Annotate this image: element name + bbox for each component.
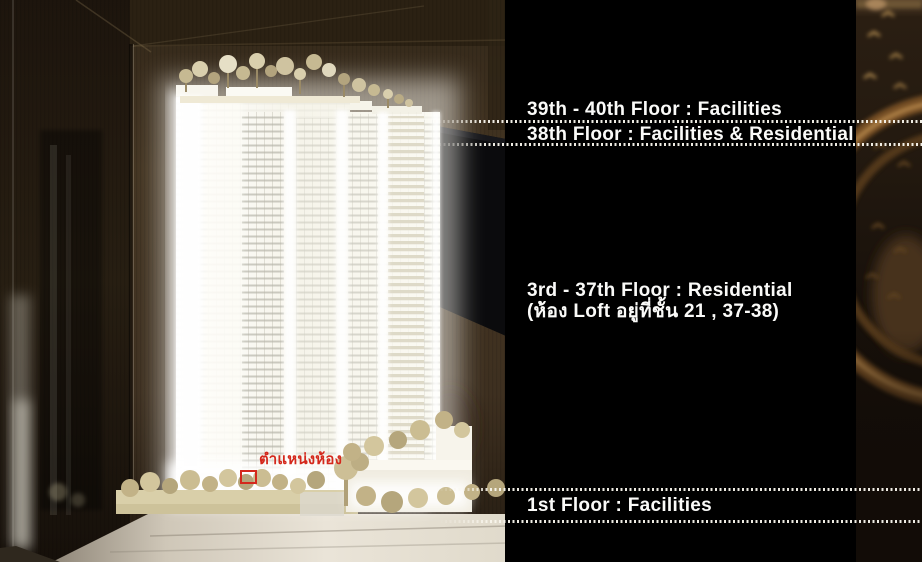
background-photo-strip [856, 0, 922, 562]
floor-label-3-37th-main: 3rd - 37th Floor : Residential [527, 280, 793, 301]
leader-line-1st-top [436, 488, 922, 491]
floor-label-39-40th: 39th - 40th Floor : Facilities [527, 99, 782, 121]
floor-label-38th: 38th Floor : Facilities & Residential [527, 124, 854, 146]
floor-label-3-37th: 3rd - 37th Floor : Residential (ห้อง Lof… [527, 280, 793, 322]
leader-line-1st-bottom [436, 520, 922, 523]
annotated-building-photo: ตำแหน่งห้อง [0, 0, 922, 562]
room-position-label: ตำแหน่งห้อง [259, 447, 342, 471]
building-model [160, 78, 460, 503]
floor-label-3-37th-sub: (ห้อง Loft อยู่ที่ชั้น 21 , 37-38) [527, 301, 793, 322]
blurred-room-illustration [856, 0, 922, 562]
room-position-marker [240, 470, 257, 484]
showroom-photo: ตำแหน่งห้อง [0, 0, 508, 562]
floor-label-1st: 1st Floor : Facilities [527, 495, 712, 517]
